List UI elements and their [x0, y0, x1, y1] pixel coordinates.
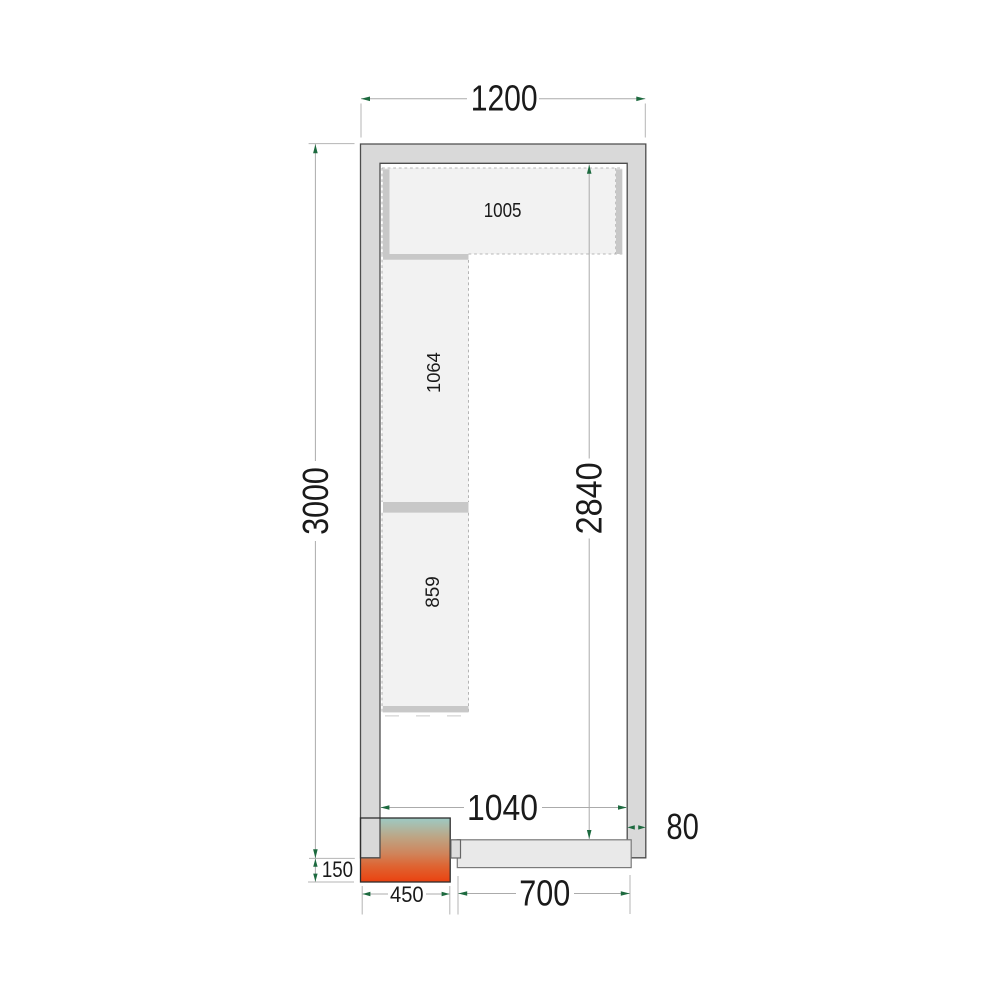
svg-text:1064: 1064 — [423, 352, 444, 393]
svg-text:700: 700 — [519, 872, 570, 913]
svg-text:1200: 1200 — [471, 78, 538, 119]
svg-text:80: 80 — [666, 806, 699, 847]
svg-text:1005: 1005 — [484, 200, 522, 222]
svg-text:859: 859 — [422, 576, 444, 608]
svg-text:2840: 2840 — [569, 462, 610, 534]
svg-text:450: 450 — [390, 882, 424, 907]
svg-text:150: 150 — [322, 857, 353, 882]
svg-text:3000: 3000 — [295, 467, 336, 535]
svg-text:1040: 1040 — [467, 787, 538, 828]
